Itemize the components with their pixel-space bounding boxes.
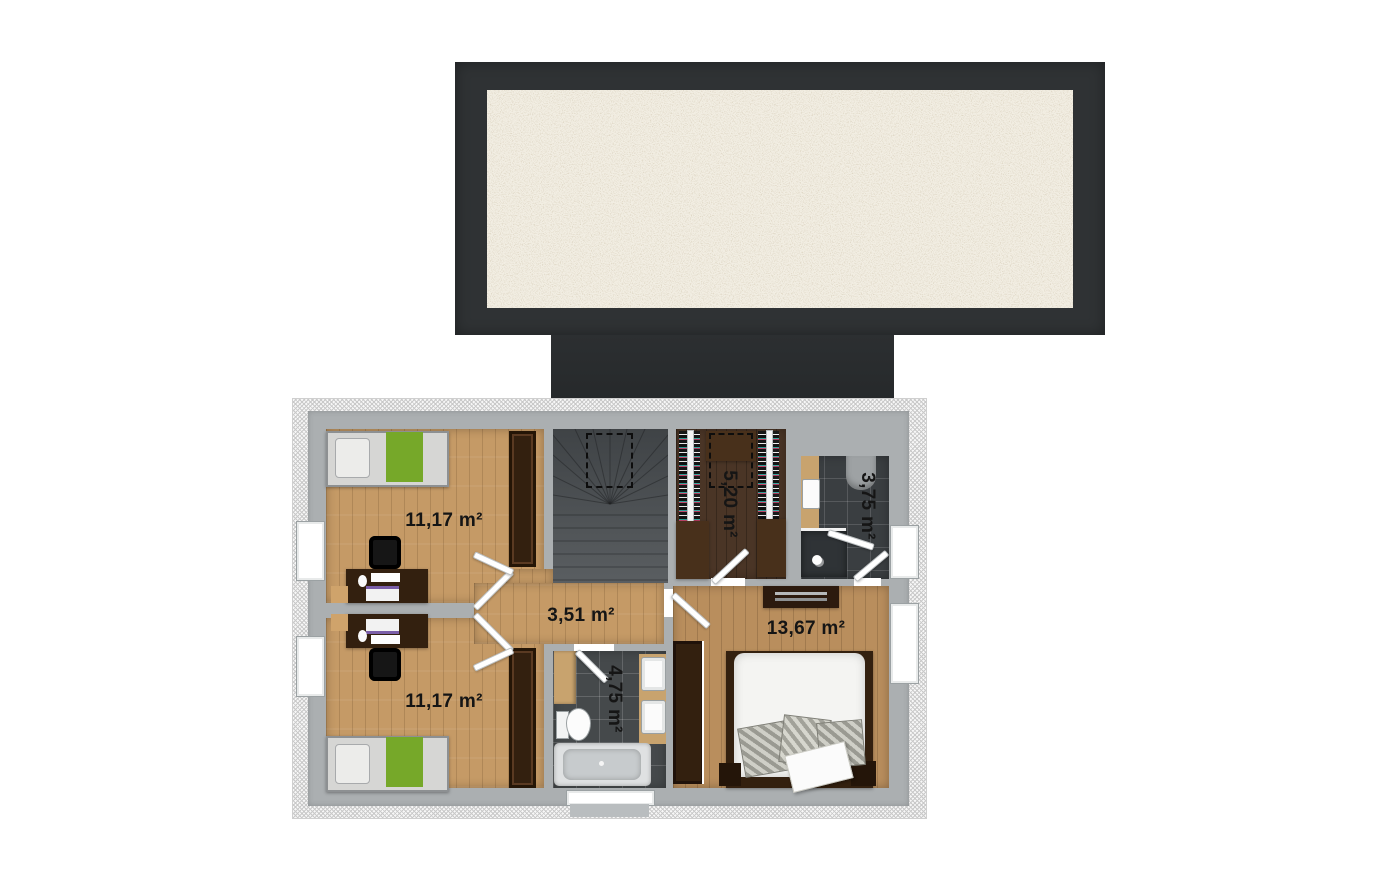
area-label-bedroom-right: 13,67 m² xyxy=(767,618,845,640)
side-table xyxy=(331,586,348,603)
desk-mug xyxy=(358,575,367,587)
clothes-rack-right-garments xyxy=(758,431,766,524)
closet-dresser-left xyxy=(676,521,709,579)
floorplan: 11,17 m² 11,17 m² 3,51 m² 5,20 m² 3,75 m… xyxy=(292,398,927,819)
window-right-bottom xyxy=(890,603,919,684)
desk-chair xyxy=(369,536,401,569)
console-shelf xyxy=(775,592,827,595)
roof-gravel-panel xyxy=(487,90,1073,308)
floorplan-render: 11,17 m² 11,17 m² 3,51 m² 5,20 m² 3,75 m… xyxy=(0,0,1400,875)
pillow xyxy=(335,438,370,478)
gravel-noise-texture xyxy=(487,90,1073,308)
console-shelf xyxy=(775,598,827,601)
desk-chair xyxy=(369,648,401,681)
bed-single-top xyxy=(326,431,449,487)
shower-partition xyxy=(801,528,846,531)
clothes-rack-right-rail xyxy=(766,430,773,527)
pillow xyxy=(335,744,370,784)
window-right-top xyxy=(890,525,919,579)
clothes-rack-left-garments xyxy=(679,431,687,524)
flat-roof xyxy=(455,62,1105,335)
desk-top xyxy=(346,569,428,603)
paper-sheet xyxy=(371,573,400,582)
bottom-wall-stub xyxy=(570,804,649,817)
area-label-bedroom-top-left: 11,17 m² xyxy=(405,510,482,532)
area-label-main-bathroom: 4,75 m² xyxy=(603,665,625,733)
paper-sheet xyxy=(371,635,400,644)
media-console xyxy=(763,586,839,608)
area-label-hallway: 3,51 m² xyxy=(547,605,615,627)
bed-double xyxy=(726,651,873,788)
laptop xyxy=(366,619,399,634)
bathtub-drain xyxy=(599,761,604,766)
area-label-bedroom-bottom-left: 11,17 m² xyxy=(405,691,482,713)
bathroom-sink xyxy=(641,700,666,734)
bathroom-sink xyxy=(641,657,666,691)
wardrobe-top-left xyxy=(509,431,536,567)
bedroom-right-door-opening xyxy=(664,589,673,617)
window-left-top xyxy=(296,521,325,581)
roof-connector xyxy=(551,335,894,400)
bathroom-top-sink xyxy=(802,479,820,509)
area-label-shower-bathroom: 3,75 m² xyxy=(856,472,878,540)
bathtub xyxy=(554,743,651,786)
desk-top xyxy=(346,614,428,648)
wardrobe-right-bedroom xyxy=(673,641,704,784)
area-label-walk-in-closet: 5,20 m² xyxy=(718,470,740,538)
closet-dresser-right xyxy=(757,519,786,577)
window-left-bottom xyxy=(296,636,325,697)
bed-single-bottom xyxy=(326,736,449,792)
wardrobe-bottom-left xyxy=(509,648,536,788)
bathroom-shelf xyxy=(554,651,576,704)
bed-blanket-green xyxy=(386,432,423,482)
shower-head-icon xyxy=(812,555,822,565)
side-table xyxy=(331,614,348,631)
stair-opening-dashed-outline xyxy=(586,433,633,488)
nightstand-left xyxy=(719,763,741,786)
bed-blanket-green xyxy=(386,737,423,787)
desk-mug xyxy=(358,630,367,642)
clothes-rack-left-rail xyxy=(687,430,694,527)
laptop xyxy=(366,586,399,601)
